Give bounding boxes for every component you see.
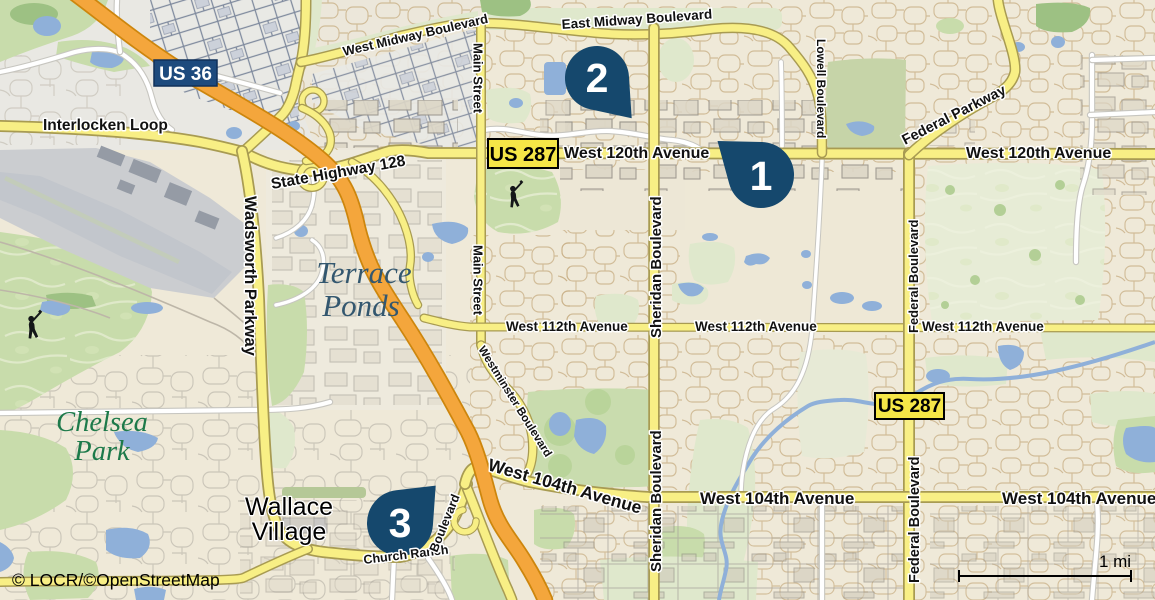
svg-text:Village: Village: [252, 518, 327, 546]
svg-text:Chelsea: Chelsea: [56, 407, 148, 438]
svg-text:Wallace: Wallace: [245, 493, 333, 521]
svg-text:2: 2: [586, 55, 609, 101]
svg-text:3: 3: [389, 500, 412, 546]
svg-text:US 287: US 287: [878, 396, 941, 417]
svg-text:US 36: US 36: [159, 64, 212, 85]
svg-text:© LOCR/©OpenStreetMap: © LOCR/©OpenStreetMap: [12, 570, 220, 590]
svg-text:Park: Park: [73, 436, 131, 467]
svg-text:Wadsworth Parkway: Wadsworth Parkway: [241, 196, 259, 357]
svg-text:Sheridan Boulevard: Sheridan Boulevard: [648, 196, 665, 338]
svg-text:West 104th Avenue: West 104th Avenue: [700, 489, 854, 508]
svg-text:West 120th Avenue: West 120th Avenue: [564, 145, 709, 162]
svg-text:Interlocken Loop: Interlocken Loop: [43, 117, 168, 134]
svg-text:West 112th Avenue: West 112th Avenue: [922, 319, 1044, 334]
svg-text:Federal Boulevard: Federal Boulevard: [907, 456, 923, 583]
svg-text:Main Street: Main Street: [471, 43, 486, 114]
svg-text:Ponds: Ponds: [321, 288, 400, 323]
svg-text:US 287: US 287: [490, 144, 557, 166]
svg-text:West 112th Avenue: West 112th Avenue: [506, 319, 628, 334]
svg-text:West 104th Avenue: West 104th Avenue: [1002, 489, 1155, 508]
svg-text:Sheridan Boulevard: Sheridan Boulevard: [648, 430, 665, 572]
svg-text:1 mi: 1 mi: [1099, 552, 1131, 571]
svg-text:1: 1: [750, 153, 773, 199]
svg-text:West 120th Avenue: West 120th Avenue: [966, 145, 1111, 162]
svg-text:Main Street: Main Street: [471, 245, 486, 316]
svg-text:Terrace: Terrace: [316, 255, 412, 290]
svg-text:Lowell Boulevard: Lowell Boulevard: [814, 39, 828, 138]
svg-text:Federal Boulevard: Federal Boulevard: [906, 220, 921, 333]
svg-text:West 112th Avenue: West 112th Avenue: [695, 319, 817, 334]
